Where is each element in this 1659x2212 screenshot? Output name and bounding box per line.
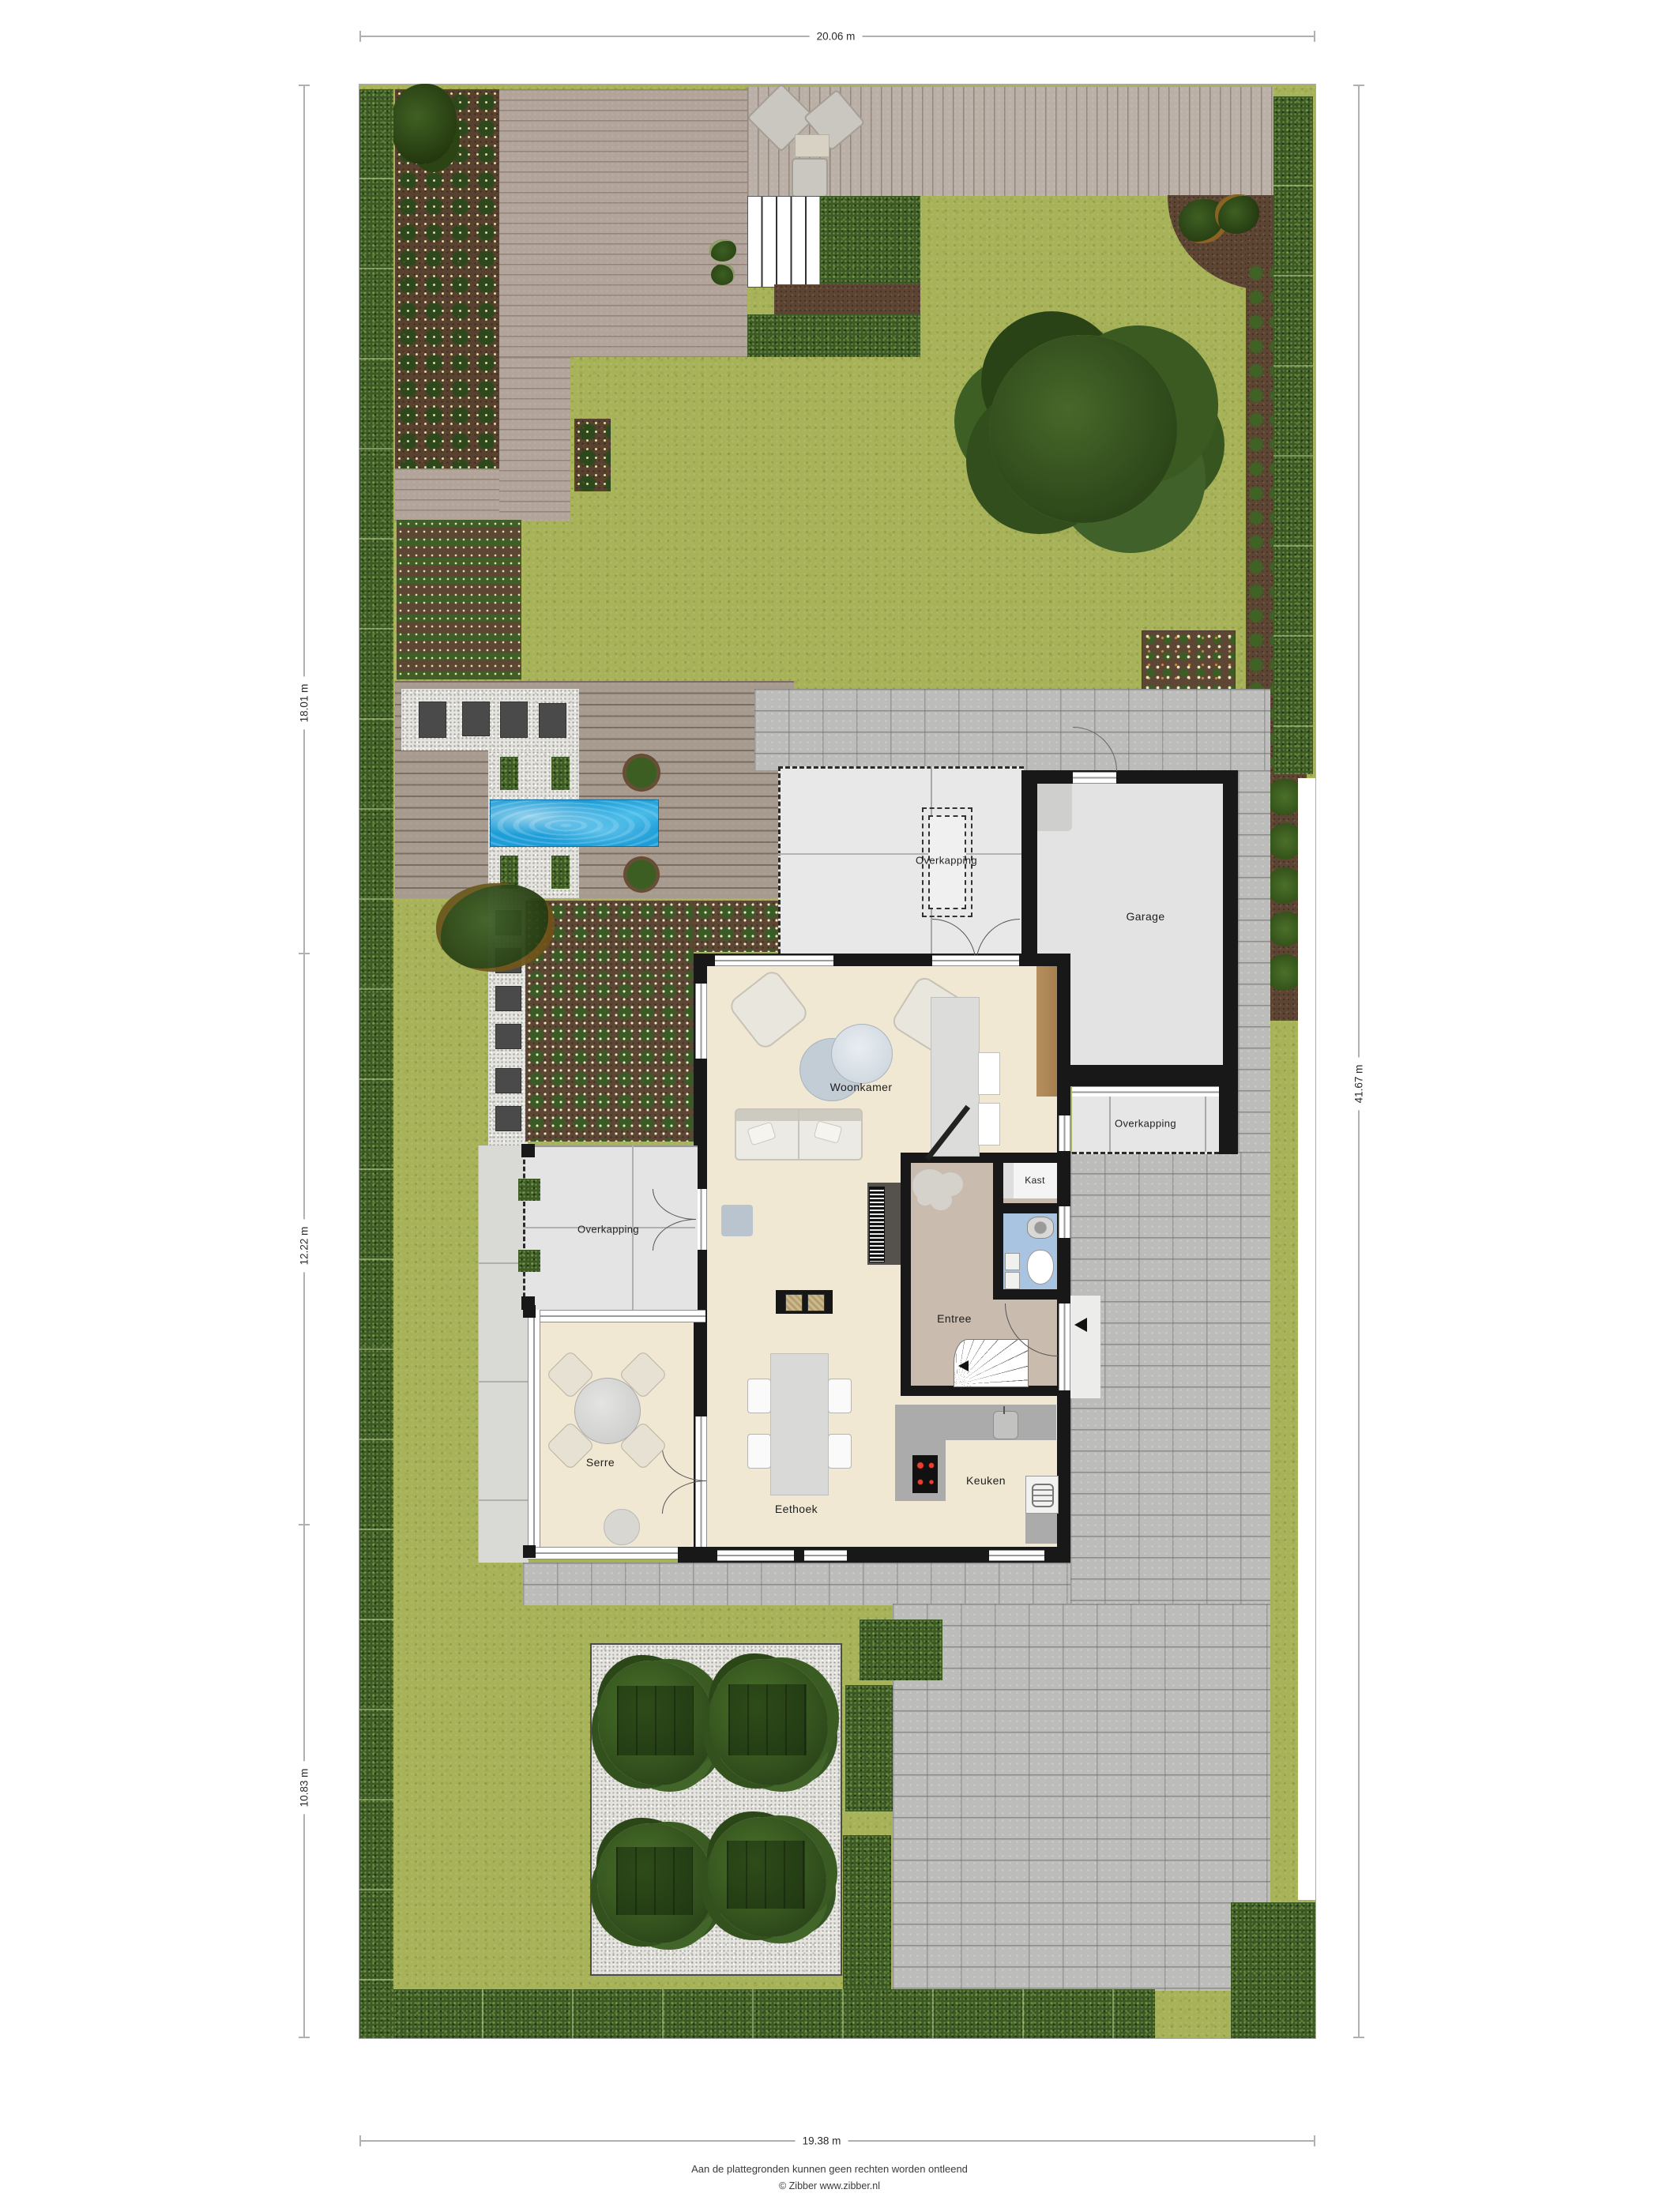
house-wall-east: [1057, 954, 1070, 1563]
planter-cube: [518, 1179, 540, 1201]
dimension-tick: [1353, 85, 1364, 86]
stepping-stone: [462, 702, 490, 736]
label-overkapping-garage: Overkapping: [1115, 1118, 1176, 1130]
label-keuken: Keuken: [966, 1474, 1006, 1487]
stepping-stone: [495, 1106, 521, 1131]
wall-niche: [978, 1052, 1000, 1095]
swimming-pool: [490, 799, 659, 847]
paved-apron: [754, 689, 1270, 770]
hedge-corner-southeast: [1231, 1902, 1315, 2038]
radiator-icon: [869, 1187, 885, 1262]
hedge-border-bottom: [393, 1989, 1155, 2038]
serre-glass-wall-west: [528, 1310, 540, 1558]
kitchen-cabinet: [1025, 1514, 1057, 1544]
dimension-tick: [299, 953, 310, 954]
window: [1059, 1115, 1070, 1151]
hedge-strip: [747, 314, 920, 357]
hedge-block: [845, 1685, 893, 1811]
garage-door-opening: [1073, 772, 1116, 784]
bush-core: [727, 1841, 805, 1908]
window: [1059, 1206, 1070, 1238]
hedge-block: [860, 1619, 942, 1680]
carport-door-opening: [932, 955, 1019, 966]
bush-core: [617, 1686, 694, 1755]
entree-wall-west: [901, 1153, 911, 1396]
dimension-label-left-top: 18.01 m: [298, 677, 311, 730]
bush-core: [616, 1847, 694, 1914]
cistern-icon: [1005, 1272, 1020, 1289]
wall-post: [523, 1545, 536, 1558]
concrete-slab-path: [478, 1145, 529, 1563]
dimension-tick: [1314, 2135, 1315, 2146]
wall-segment: [678, 1547, 717, 1563]
footer-disclaimer: Aan de plattegronden kunnen geen rechten…: [0, 2163, 1659, 2175]
washbasin-icon: [1027, 1217, 1054, 1239]
dimension-tick: [299, 85, 310, 86]
label-serre: Serre: [586, 1456, 615, 1469]
hedge-block: [820, 196, 920, 284]
carport-divider: [778, 853, 1021, 855]
partition-wall: [993, 1153, 1003, 1300]
hedge-cube: [500, 757, 518, 790]
front-door: [1059, 1303, 1070, 1352]
dimension-line-left: [303, 85, 305, 2038]
wall-niche: [978, 1103, 1000, 1145]
wicker-basket: [785, 1294, 803, 1311]
window: [715, 955, 833, 966]
dimension-tick: [359, 31, 361, 42]
hedge-cube: [551, 856, 570, 889]
window: [695, 1513, 707, 1547]
overkapping-divider: [1109, 1097, 1111, 1152]
label-kast: Kast: [1025, 1175, 1045, 1186]
planter-cube: [518, 1250, 540, 1272]
pouf: [604, 1509, 640, 1545]
stepping-stone: [495, 1068, 521, 1093]
sink-tap-icon: [1003, 1406, 1005, 1414]
lounge-table: [795, 134, 829, 157]
oven-glyph: [1032, 1484, 1054, 1507]
dimension-tick: [1314, 31, 1315, 42]
dimension-tick: [1353, 2037, 1364, 2038]
coffee-table: [831, 1024, 893, 1084]
wood-deck: [395, 468, 499, 521]
wall-post: [1219, 1086, 1238, 1154]
stepping-stone: [495, 986, 521, 1011]
cistern-icon: [1005, 1253, 1020, 1270]
garage-storage: [1037, 784, 1072, 831]
wicker-basket: [807, 1294, 825, 1311]
dimension-label-left-middle: 12.22 m: [298, 1220, 311, 1273]
wall-post: [523, 1305, 536, 1318]
dining-chair: [828, 1434, 852, 1469]
dimension-label-right: 41.67 m: [1352, 1058, 1366, 1111]
dimension-label-bottom: 19.38 m: [796, 2135, 848, 2148]
label-eethoek: Eethoek: [775, 1503, 818, 1515]
window: [711, 1550, 794, 1561]
toilet-icon: [1027, 1250, 1054, 1285]
stepping-stone: [500, 702, 528, 738]
label-garage: Garage: [1126, 910, 1164, 923]
dining-chair: [747, 1379, 771, 1413]
stepping-stone: [495, 1024, 521, 1049]
serre-glass-wall-north: [528, 1310, 705, 1322]
wood-deck: [499, 89, 747, 357]
dining-table: [770, 1353, 829, 1495]
window: [695, 1416, 707, 1448]
entrance-arrow-icon: [1074, 1318, 1087, 1332]
hedge-border-left: [359, 89, 393, 2038]
sink-icon: [993, 1411, 1018, 1439]
footer-credit: © Zibber www.zibber.nl: [0, 2180, 1659, 2191]
round-planter: [623, 856, 660, 893]
tree: [989, 335, 1177, 523]
berry-garden-bed: [525, 980, 694, 1142]
island-cabinet: [931, 997, 980, 1157]
wall-post: [521, 1144, 535, 1157]
rose-bed: [397, 520, 521, 679]
stove-icon: [912, 1455, 938, 1493]
site-plan-canvas: Woonkamer Entree Kast Serre Eethoek Keuk…: [0, 0, 1659, 2212]
soil-strip: [774, 284, 920, 314]
paved-strip-east: [1238, 770, 1270, 1152]
driveway-south: [893, 1604, 1270, 1991]
stepping-stone: [419, 702, 446, 738]
dimension-tick: [359, 2135, 361, 2146]
coat-rack-cloud: [912, 1169, 947, 1202]
boundary-gap: [1298, 778, 1315, 1900]
label-woonkamer: Woonkamer: [830, 1081, 893, 1093]
dimension-tick: [299, 2037, 310, 2038]
berry-garden-bed: [694, 901, 778, 952]
label-overkapping-west: Overkapping: [577, 1224, 639, 1236]
dimension-label-top: 20.06 m: [810, 30, 863, 43]
label-entree: Entree: [937, 1312, 972, 1325]
hedge-cube: [551, 757, 570, 790]
hedge-border-right: [1273, 96, 1313, 774]
window: [1059, 1352, 1070, 1390]
entrance-porch: [1070, 1296, 1100, 1398]
label-overkapping-carport: Overkapping: [916, 855, 977, 867]
stair-direction-arrow-icon: [958, 1360, 969, 1371]
round-planter: [623, 754, 660, 792]
dimension-label-left-bottom: 10.83 m: [298, 1762, 311, 1815]
dimension-tick: [299, 1524, 310, 1525]
toilet-wall-south: [993, 1289, 1070, 1300]
bush-core: [728, 1684, 807, 1755]
paved-terrace-south: [523, 1563, 1070, 1605]
lounge-chair: [792, 158, 828, 197]
small-planting-patch: [574, 419, 611, 491]
stepping-stone: [539, 703, 566, 738]
kast-door: [1003, 1163, 1014, 1198]
terrace-steps: [747, 196, 822, 288]
side-table: [721, 1205, 753, 1236]
wood-panel: [1036, 966, 1057, 1097]
window: [695, 984, 707, 1059]
dining-chair: [828, 1379, 852, 1413]
window: [989, 1550, 1044, 1561]
serre-round-table: [574, 1378, 641, 1444]
overkapping-divider: [1205, 1097, 1206, 1152]
dining-chair: [747, 1434, 771, 1469]
wood-deck: [499, 357, 570, 521]
hedge-block: [843, 1835, 891, 1991]
window: [804, 1550, 847, 1561]
